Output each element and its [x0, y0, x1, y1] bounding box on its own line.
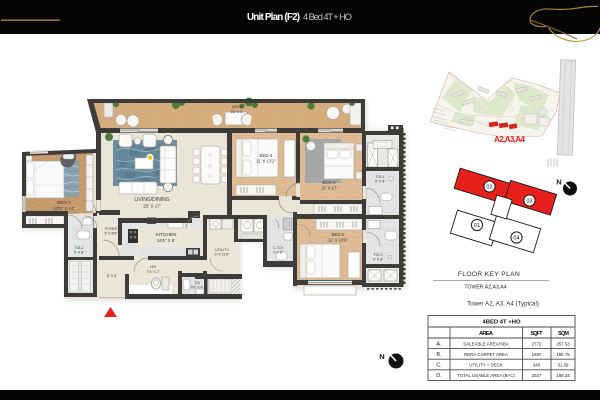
svg-text:13'5" X 14': 13'5" X 14': [54, 206, 75, 211]
svg-text:TOI-3: TOI-3: [373, 253, 382, 257]
svg-text:TOI: TOI: [194, 281, 200, 285]
svg-text:156.75: 156.75: [556, 352, 570, 357]
svg-text:AREA: AREA: [479, 331, 494, 337]
svg-text:BED-3: BED-3: [323, 180, 336, 185]
svg-text:TOI-2: TOI-2: [74, 246, 83, 250]
svg-text:B.: B.: [436, 352, 442, 358]
svg-text:5' X 11'6": 5' X 11'6": [215, 253, 230, 257]
svg-text:N: N: [379, 352, 384, 361]
svg-text:TOTAL USABLE AREA (B+C): TOTAL USABLE AREA (B+C): [457, 373, 515, 378]
svg-text:31.59: 31.59: [558, 363, 570, 368]
svg-text:N: N: [556, 178, 561, 187]
svg-text:25' X 17': 25' X 17': [143, 204, 161, 209]
svg-text:C.TOI: C.TOI: [273, 246, 283, 250]
svg-text:01: 01: [474, 223, 480, 229]
svg-text:FOYER: FOYER: [105, 227, 118, 231]
svg-text:C.: C.: [436, 363, 442, 369]
svg-text:UTILITY: UTILITY: [215, 248, 229, 252]
svg-text:SQFT: SQFT: [531, 331, 544, 337]
svg-text:TOI-1: TOI-1: [375, 175, 384, 179]
svg-text:FLOOR KEY PLAN: FLOOR KEY PLAN: [458, 271, 520, 278]
svg-text:Tower A2, A3, A4 (Typical): Tower A2, A3, A4 (Typical): [467, 301, 539, 308]
svg-text:2772: 2772: [532, 342, 542, 347]
svg-text:5 X 8': 5 X 8': [273, 251, 282, 255]
svg-text:2027: 2027: [532, 373, 542, 378]
svg-text:BED-5: BED-5: [332, 232, 345, 237]
svg-text:02: 02: [486, 185, 492, 191]
svg-text:RERA CARPET AREA: RERA CARPET AREA: [464, 352, 508, 357]
svg-text:12' X 17': 12' X 17': [321, 186, 337, 191]
svg-text:DECK: DECK: [232, 105, 243, 109]
svg-text:TOWER A2,A3,A4: TOWER A2,A3,A4: [464, 285, 506, 291]
svg-text:4BED 4T +HO: 4BED 4T +HO: [482, 320, 521, 326]
svg-text:BED-2: BED-2: [57, 200, 71, 205]
svg-text:UTILITY + DECK: UTILITY + DECK: [469, 363, 503, 368]
svg-text:BED-4: BED-4: [260, 153, 273, 158]
svg-text:04: 04: [513, 236, 519, 242]
svg-text:188.34: 188.34: [556, 373, 570, 378]
svg-text:14'6" X 8': 14'6" X 8': [157, 238, 176, 243]
svg-text:12' X 13'6": 12' X 13'6": [328, 238, 348, 243]
svg-text:6' X 8': 6' X 8': [373, 258, 383, 262]
svg-text:HO: HO: [150, 265, 156, 269]
svg-text:SQM: SQM: [558, 331, 569, 337]
svg-text:LIVING/DINING: LIVING/DINING: [134, 197, 169, 203]
svg-text:SALEABLE AREA/SBA: SALEABLE AREA/SBA: [463, 342, 508, 347]
svg-text:A2,A3,A4: A2,A3,A4: [494, 135, 525, 144]
svg-text:6' X 8': 6' X 8': [375, 180, 385, 184]
svg-text:61' X 6': 61' X 6': [231, 110, 244, 114]
svg-text:257.53: 257.53: [556, 342, 570, 347]
svg-text:8' X 8': 8' X 8': [107, 274, 117, 278]
svg-text:A.: A.: [436, 342, 442, 348]
svg-text:4 Bed 4T + HO: 4 Bed 4T + HO: [303, 12, 352, 22]
svg-text:D.: D.: [436, 373, 442, 379]
svg-text:5' X 8': 5' X 8': [74, 251, 84, 255]
svg-text:6'9" X 4': 6'9" X 4': [191, 285, 204, 289]
svg-text:03: 03: [526, 199, 532, 205]
svg-text:5' X 8'9": 5' X 8'9": [104, 232, 118, 236]
svg-text:340: 340: [533, 363, 541, 368]
svg-text:7'4" X 7': 7'4" X 7': [146, 270, 159, 274]
svg-text:11' X 13'2": 11' X 13'2": [256, 159, 276, 164]
svg-text:Unit Plan (F2): Unit Plan (F2): [247, 12, 300, 23]
svg-text:1687: 1687: [532, 352, 542, 357]
